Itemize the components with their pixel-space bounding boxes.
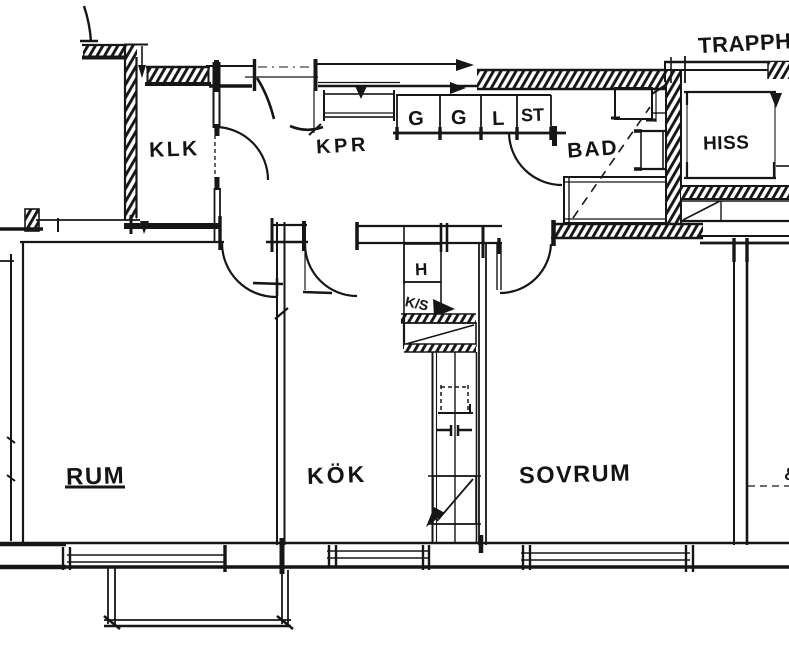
svg-text:G: G xyxy=(408,108,424,131)
svg-text:G: G xyxy=(451,107,467,130)
svg-text:KÖK: KÖK xyxy=(307,461,368,489)
svg-text:SOVRUM: SOVRUM xyxy=(519,459,632,488)
svg-text:L: L xyxy=(492,108,505,130)
svg-text:ST: ST xyxy=(521,105,545,126)
svg-text:KLK: KLK xyxy=(149,137,200,162)
svg-text:KPR: KPR xyxy=(316,134,370,159)
svg-text:HISS: HISS xyxy=(703,132,750,154)
svg-text:H: H xyxy=(415,260,428,279)
svg-text:BAD: BAD xyxy=(566,136,619,163)
svg-text:&: & xyxy=(784,464,789,484)
svg-text:TRAPPHU: TRAPPHU xyxy=(697,27,789,58)
